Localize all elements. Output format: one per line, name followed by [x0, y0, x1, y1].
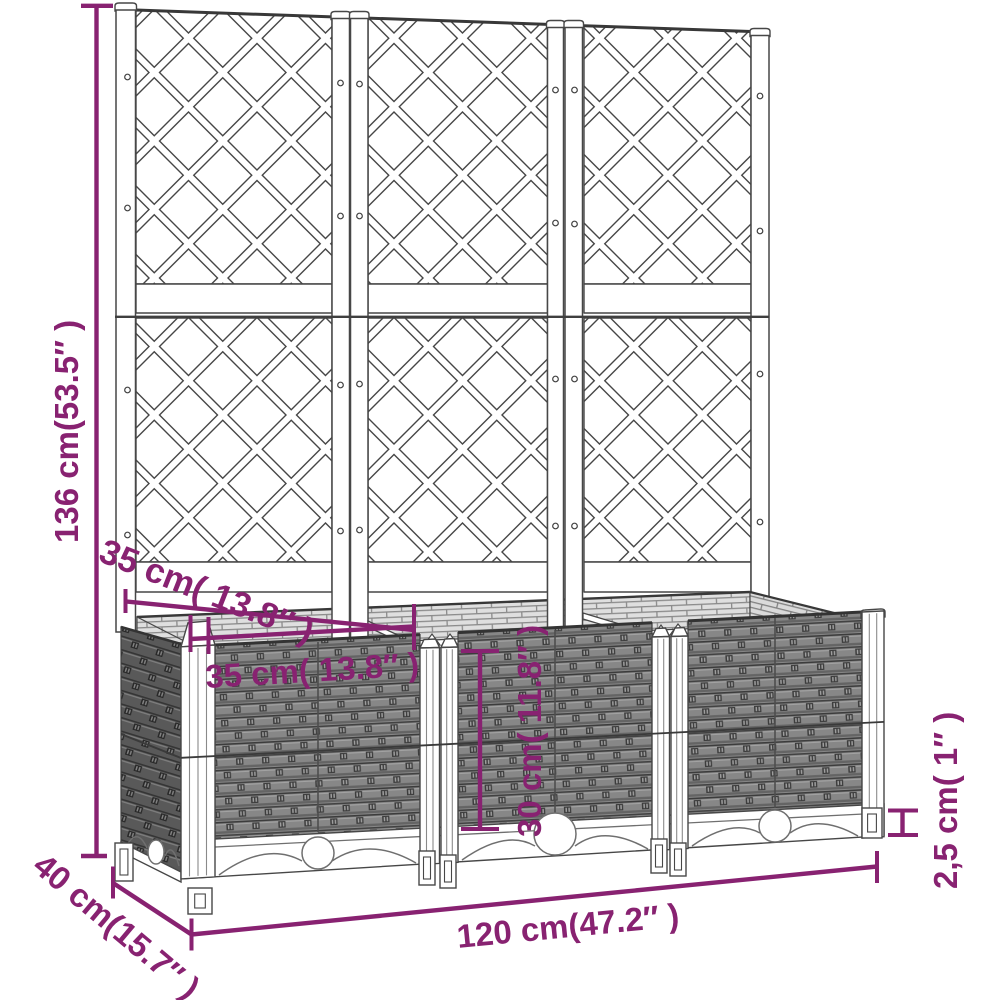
- svg-text:2,5 cm( 1″ ): 2,5 cm( 1″ ): [927, 712, 964, 889]
- svg-text:136 cm(53.5″ ): 136 cm(53.5″ ): [48, 320, 85, 543]
- svg-text:30 cm( 11.8″ ): 30 cm( 11.8″ ): [511, 625, 548, 837]
